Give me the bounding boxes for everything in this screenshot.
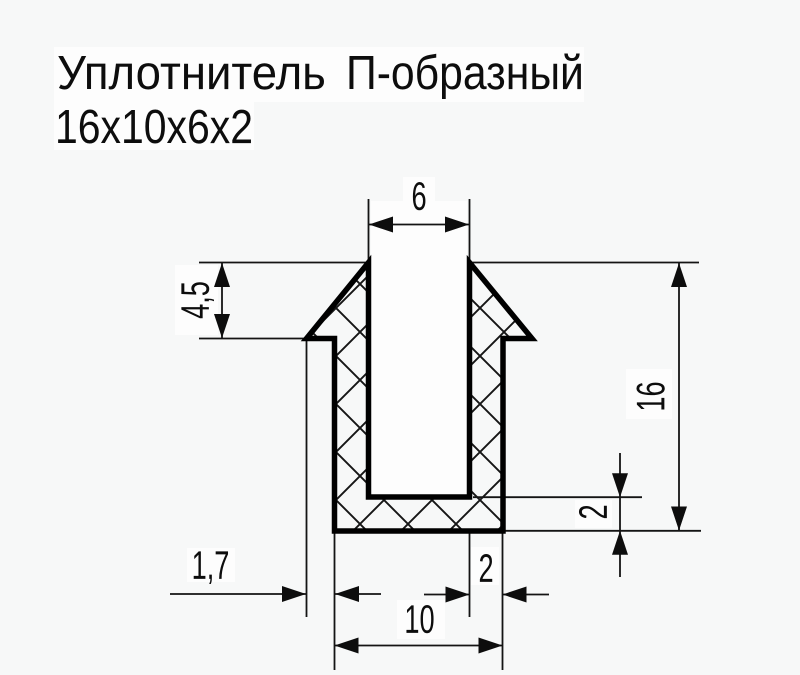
svg-text:10: 10 (404, 598, 434, 642)
svg-text:Уплотнитель: Уплотнитель (57, 46, 326, 99)
svg-text:П-образный: П-образный (346, 46, 584, 100)
svg-text:16: 16 (629, 381, 673, 411)
svg-text:16х10х6х2: 16х10х6х2 (55, 101, 253, 154)
svg-text:4,5: 4,5 (174, 281, 218, 319)
svg-text:6: 6 (411, 175, 426, 219)
svg-text:1,7: 1,7 (192, 544, 230, 588)
svg-text:2: 2 (478, 547, 493, 591)
svg-text:2: 2 (572, 504, 616, 519)
